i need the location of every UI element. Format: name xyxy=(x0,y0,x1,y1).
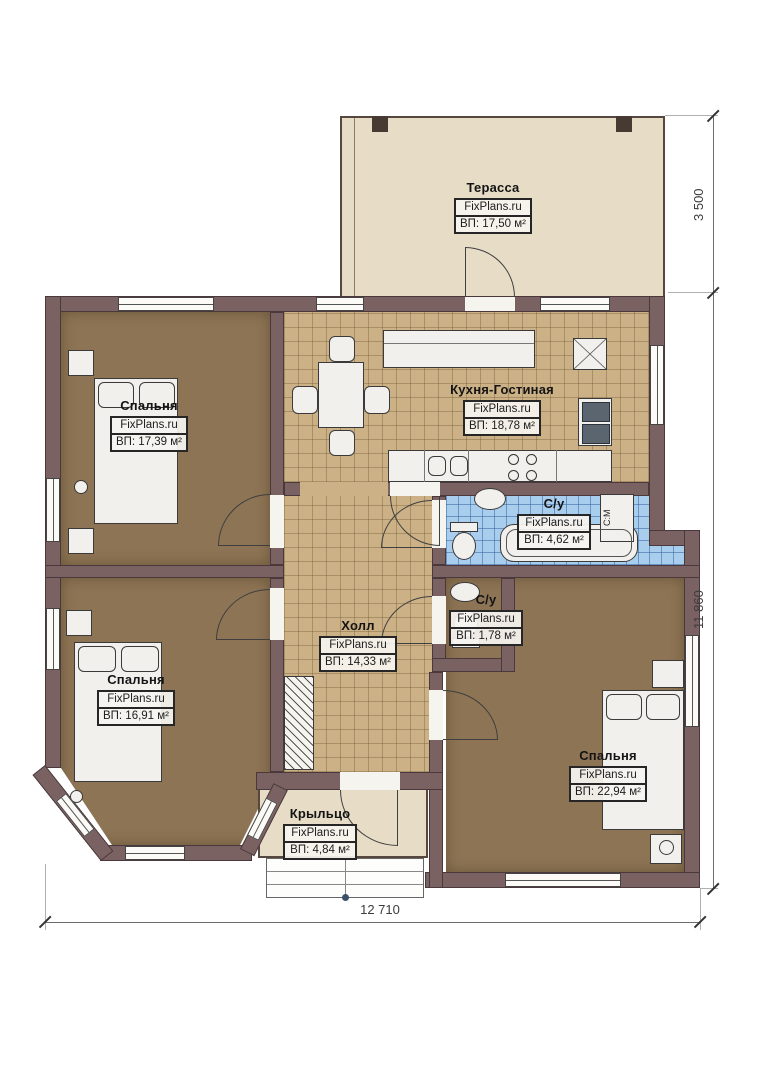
brand-label: FixPlans.ru xyxy=(285,826,355,841)
area-label: ВП: 17,39 м² xyxy=(112,433,186,450)
bedroom1-door-opening xyxy=(270,495,284,548)
area-label: ВП: 14,33 м² xyxy=(321,653,395,670)
brand-label: FixPlans.ru xyxy=(451,612,521,627)
pillow xyxy=(646,694,680,720)
chair xyxy=(329,336,355,362)
room-label-bathroom1: С/у FixPlans.ru ВП: 4,62 м² xyxy=(516,496,592,550)
room-info-box: FixPlans.ru ВП: 16,91 м² xyxy=(97,690,175,726)
terrace-door-opening xyxy=(465,297,515,311)
room-info-box: FixPlans.ru ВП: 1,78 м² xyxy=(449,610,523,646)
nightstand xyxy=(652,660,684,688)
bedroom2-door-opening xyxy=(270,588,284,640)
room-info-box: FixPlans.ru ВП: 17,39 м² xyxy=(110,416,188,452)
floor-plan: С:М Терасса FixPlans.ru ВП: 17,50 м² Спа… xyxy=(0,0,763,1080)
area-label: ВП: 17,50 м² xyxy=(456,215,530,232)
stove-burner xyxy=(526,454,537,465)
room-title: Терасса xyxy=(443,180,543,195)
area-label: ВП: 4,62 м² xyxy=(519,531,589,548)
extension-line xyxy=(700,888,718,889)
room-info-box: FixPlans.ru ВП: 22,94 м² xyxy=(569,766,647,802)
washing-machine-label: С:М xyxy=(602,496,616,540)
toilet-tank xyxy=(450,522,478,532)
room-label-kitchen: Кухня-Гостиная FixPlans.ru ВП: 18,78 м² xyxy=(448,382,556,436)
room-label-hall: Холл FixPlans.ru ВП: 14,33 м² xyxy=(314,618,402,672)
window xyxy=(46,478,60,542)
dimension-line-terrace xyxy=(713,115,714,293)
window xyxy=(316,297,364,311)
pillow xyxy=(121,646,159,672)
brand-label: FixPlans.ru xyxy=(519,516,589,531)
nightstand xyxy=(66,610,92,636)
sink-bowl xyxy=(582,402,610,422)
chair xyxy=(364,386,390,414)
room-info-box: FixPlans.ru ВП: 18,78 м² xyxy=(463,400,541,436)
sink-bowl xyxy=(428,456,446,476)
dimension-line-right xyxy=(713,292,714,889)
sofa xyxy=(383,330,535,368)
brand-label: FixPlans.ru xyxy=(456,200,530,215)
room-title: Спальня xyxy=(91,398,207,413)
toilet-bowl xyxy=(452,532,476,560)
bathroom1-floor-ext xyxy=(649,546,684,565)
room-label-bedroom3: Спальня FixPlans.ru ВП: 22,94 м² xyxy=(562,748,654,802)
washbasin xyxy=(474,488,506,510)
wall-bedrooms-divider xyxy=(45,565,284,578)
brand-label: FixPlans.ru xyxy=(321,638,395,653)
room-title: Кухня-Гостиная xyxy=(448,382,556,397)
terrace-post xyxy=(616,116,632,132)
wardrobe xyxy=(284,676,314,770)
bathroom2-door-opening xyxy=(432,596,446,644)
counter-divider xyxy=(556,450,557,482)
room-label-bedroom2: Спальня FixPlans.ru ВП: 16,91 м² xyxy=(86,672,186,726)
sink-bowl xyxy=(450,456,468,476)
counter-divider xyxy=(468,450,469,482)
window xyxy=(46,608,60,670)
brand-label: FixPlans.ru xyxy=(465,402,539,417)
dimension-house-width: 12 710 xyxy=(320,902,440,917)
extension-line xyxy=(700,888,701,930)
window xyxy=(505,873,621,887)
room-info-box: FixPlans.ru ВП: 17,50 м² xyxy=(454,198,532,234)
room-title: Холл xyxy=(314,618,402,633)
hall-kitchen-opening xyxy=(300,482,388,496)
brand-label: FixPlans.ru xyxy=(99,692,173,707)
counter-divider xyxy=(424,450,425,482)
area-label: ВП: 18,78 м² xyxy=(465,417,539,434)
dimension-line-bottom xyxy=(45,922,701,923)
room-title: Крыльцо xyxy=(281,806,359,821)
room-info-box: FixPlans.ru ВП: 4,62 м² xyxy=(517,514,591,550)
terrace-post xyxy=(372,116,388,132)
room-title: С/у xyxy=(448,592,524,607)
area-label: ВП: 4,84 м² xyxy=(285,841,355,858)
nightstand xyxy=(68,350,94,376)
stove-burner xyxy=(508,454,519,465)
room-label-terrace: Терасса FixPlans.ru ВП: 17,50 м² xyxy=(443,180,543,234)
pillow xyxy=(606,694,642,720)
brand-label: FixPlans.ru xyxy=(571,768,645,783)
window xyxy=(118,297,214,311)
floor-lamp xyxy=(659,840,674,855)
room-label-porch: Крыльцо FixPlans.ru ВП: 4,84 м² xyxy=(281,806,359,860)
bedroom3-door-opening xyxy=(429,690,443,740)
dining-table xyxy=(318,362,364,428)
kitchen-counter xyxy=(388,450,612,482)
stove-burner xyxy=(526,470,537,481)
dimension-terrace-depth: 3 500 xyxy=(691,155,709,255)
window xyxy=(540,297,610,311)
chair xyxy=(292,386,318,414)
room-label-bedroom1: Спальня FixPlans.ru ВП: 17,39 м² xyxy=(91,398,207,452)
room-title: Спальня xyxy=(562,748,654,763)
window xyxy=(650,345,664,425)
wall-bathroom1-bottom xyxy=(432,565,700,578)
area-label: ВП: 16,91 м² xyxy=(99,707,173,724)
room-title: Спальня xyxy=(86,672,186,687)
area-label: ВП: 22,94 м² xyxy=(571,783,645,800)
pillow xyxy=(78,646,116,672)
stove-burner xyxy=(508,470,519,481)
floor-lamp xyxy=(74,480,88,494)
marker-dot xyxy=(342,894,349,901)
room-info-box: FixPlans.ru ВП: 4,84 м² xyxy=(283,824,357,860)
nightstand xyxy=(68,528,94,554)
brand-label: FixPlans.ru xyxy=(112,418,186,433)
room-info-box: FixPlans.ru ВП: 14,33 м² xyxy=(319,636,397,672)
kitchen-door-opening xyxy=(390,482,440,496)
room-title: С/у xyxy=(516,496,592,511)
step-center-line xyxy=(345,858,346,898)
terrace-edge-line xyxy=(354,118,355,296)
dimension-house-depth: 11 860 xyxy=(691,555,709,665)
sink-bowl xyxy=(582,424,610,444)
area-label: ВП: 1,78 м² xyxy=(451,627,521,644)
room-label-bathroom2: С/у FixPlans.ru ВП: 1,78 м² xyxy=(448,592,524,646)
chair xyxy=(329,430,355,456)
entrance-door-opening xyxy=(340,772,400,790)
shaft-box xyxy=(573,338,607,370)
window xyxy=(125,846,185,860)
